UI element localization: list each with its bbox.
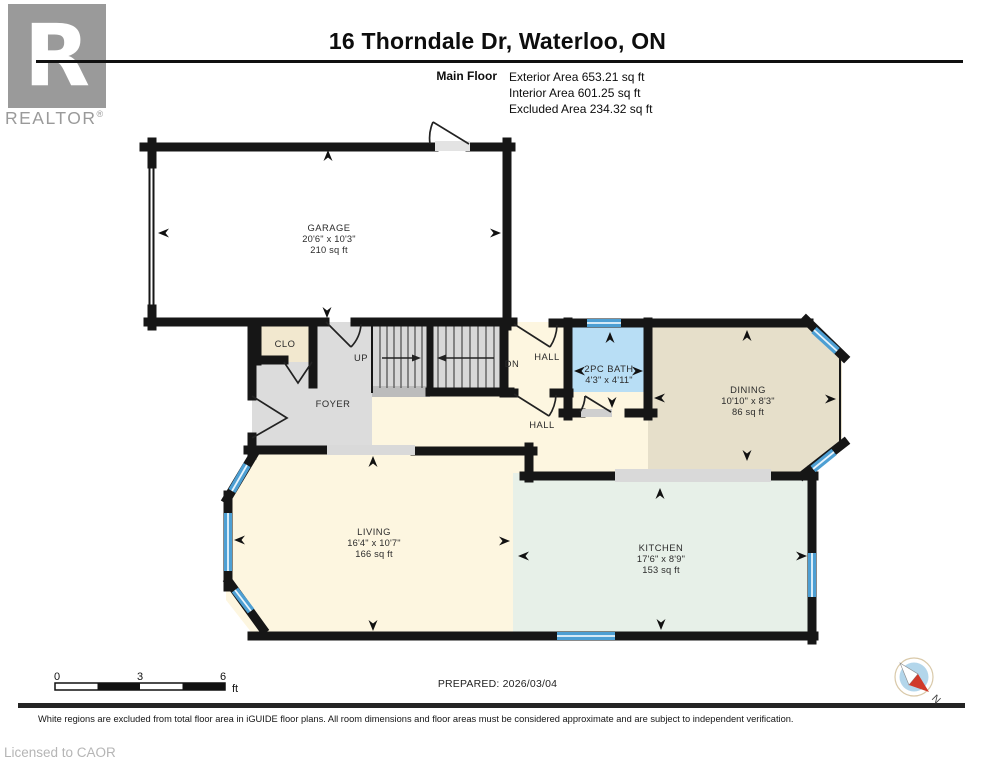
prepared-date: PREPARED: 2026/03/04 [0,678,995,690]
garage-door-sill [435,141,470,151]
living-area: 166 sq ft [355,549,393,559]
bath-dims: 4'3" x 4'11" [585,375,633,385]
kitchen-area: 153 sq ft [642,565,680,575]
kitchen-dims: 17'6" x 8'9" [637,554,685,564]
title-divider [36,60,963,63]
realtor-logo-word: REALTOR® [5,108,135,129]
stairs-down-label: DN [505,358,520,369]
living-label: LIVING [357,526,391,537]
dining-area: 86 sq ft [732,407,764,417]
bath-label: 2PC BATH [584,363,633,374]
hall-lower-label: HALL [529,419,554,430]
garage-entry-door [430,122,469,144]
floorplan-svg: GARAGE 20'6" x 10'3" 210 sq ft CLO FOYER… [0,0,995,768]
garage-label: GARAGE [307,222,350,233]
foyer-living-opening [327,445,415,455]
registered-mark: ® [97,109,104,119]
hall-upper-label: HALL [534,351,559,362]
realtor-logo-r-icon: R [24,13,90,99]
realtor-logo-text: REALTOR [5,108,97,128]
realtor-logo: R [8,4,106,108]
kitchen-label: KITCHEN [639,542,684,553]
closet-label: CLO [275,338,296,349]
living-dims: 16'4" x 10'7" [347,538,401,548]
foyer-label: FOYER [316,398,351,409]
garage-area: 210 sq ft [310,245,348,255]
garage-dims: 20'6" x 10'3" [302,234,356,244]
compass-north-label: N [929,692,943,706]
floorplan-page: R REALTOR® 16 Thorndale Dr, Waterloo, ON… [0,0,995,768]
dining-dims: 10'10" x 8'3" [721,396,775,406]
stairs-up-label: UP [354,352,368,363]
dining-label: DINING [730,384,766,395]
dining-kitchen-passthrough [615,469,771,482]
